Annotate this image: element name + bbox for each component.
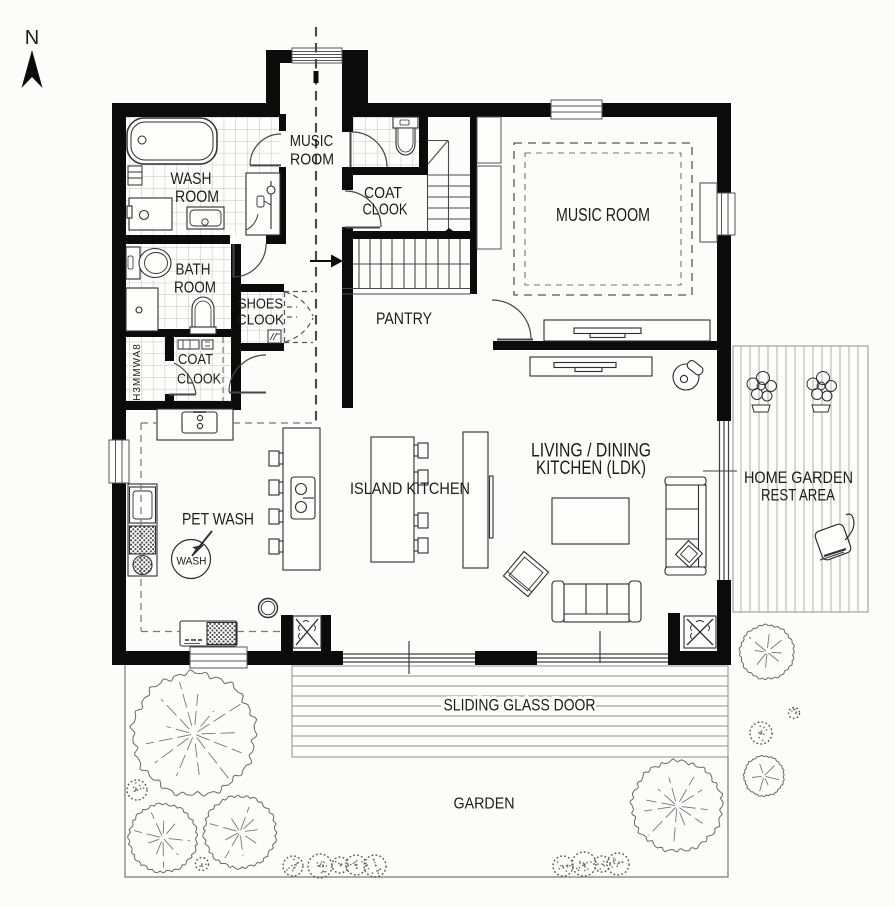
svg-text:ISLAND KITCHEN: ISLAND KITCHEN	[350, 480, 470, 498]
svg-text:PANTRY: PANTRY	[376, 310, 432, 328]
svg-text:WASH: WASH	[171, 170, 212, 188]
svg-text:WASH: WASH	[177, 556, 207, 568]
svg-text:MUSIC: MUSIC	[290, 133, 334, 150]
svg-text:GARDEN: GARDEN	[454, 796, 515, 813]
svg-text:ROOM: ROOM	[174, 280, 216, 297]
svg-text:SLIDING GLASS DOOR: SLIDING GLASS DOOR	[444, 697, 596, 715]
svg-text:KITCHEN (LDK): KITCHEN (LDK)	[536, 458, 646, 479]
svg-text:PET WASH: PET WASH	[182, 510, 254, 529]
svg-text:COAT: COAT	[364, 185, 402, 202]
svg-text:CLOOK: CLOOK	[177, 372, 221, 388]
svg-text:SHOES: SHOES	[238, 296, 283, 313]
svg-text:H3MMWA8: H3MMWA8	[132, 343, 143, 401]
svg-text:N: N	[25, 27, 39, 49]
svg-text:HOME GARDEN: HOME GARDEN	[744, 468, 853, 487]
svg-text:CLOOK: CLOOK	[363, 202, 408, 219]
svg-text:ROOM: ROOM	[175, 188, 219, 206]
svg-text:BATH: BATH	[176, 261, 211, 278]
svg-text:CLOOK: CLOOK	[237, 312, 284, 329]
svg-text:ROOM: ROOM	[290, 152, 334, 169]
svg-text:REST AREA: REST AREA	[761, 486, 836, 505]
svg-text:COAT: COAT	[178, 352, 213, 368]
svg-text:MUSIC ROOM: MUSIC ROOM	[556, 205, 650, 225]
